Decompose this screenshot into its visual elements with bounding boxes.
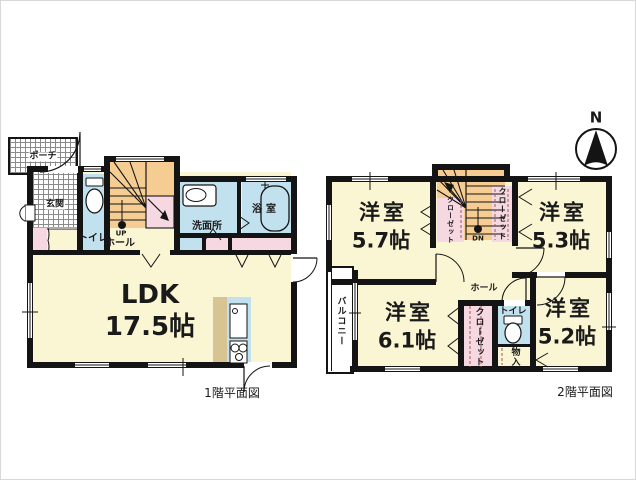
stairs1-area [110,162,174,228]
window [75,362,109,368]
window [352,176,388,182]
wall [170,250,180,255]
floor-plan-image: ポーチ 玄関 トイレ UP ホール 洗面所 浴室 LDK 17.5帖 1階平面図… [0,0,636,480]
door-gap [244,362,272,368]
bedroom-se-size: 5.2帖 [538,327,596,348]
window [148,362,186,368]
washroom-label: 洗面所 [192,222,222,232]
bedroom-se-label: 洋室 [545,299,593,320]
door-gap [504,300,525,306]
wall [512,176,518,246]
hall1-label: ホール [105,239,135,249]
wall [332,279,436,285]
floor1-caption: 1階平面図 [204,387,260,399]
window [326,205,332,240]
ldk-label: LDK [121,282,179,308]
wall [174,156,180,254]
closet-nw-label: クローゼット [447,196,454,244]
door-gap [291,254,297,282]
wall [180,250,297,255]
balcony-label: バルコニー [336,296,345,346]
wall [492,300,498,372]
stairs-down-label: DN [472,236,484,243]
window [385,366,420,372]
ldk-size-label: 17.5帖 [105,314,195,340]
wall [458,300,464,372]
window [352,283,358,340]
wall [504,164,510,178]
door-gap [48,166,78,173]
window [84,166,101,172]
floor2-caption: 2階平面図 [557,386,613,398]
window [543,366,578,372]
compass-north-label: N [590,111,603,126]
toilet2-label: トイレ [499,308,526,317]
bath-label: 浴室 [252,205,280,215]
hall2-label: ホール [470,285,497,294]
window [606,293,612,330]
entrance-label: 玄関 [45,201,65,210]
wall [432,164,510,170]
bedroom-nw-size: 5.7帖 [352,231,410,252]
bedroom-sw-size: 6.1帖 [378,331,436,352]
window [116,156,164,162]
wall [27,172,33,368]
wall [27,250,140,255]
wall [202,238,206,252]
compass-icon [576,129,616,169]
closet-ne-label: クローゼット [498,187,506,241]
door-gap [27,205,33,221]
door-gap [537,272,565,278]
kitchen-counter [227,297,251,367]
porch-label: ポーチ [28,153,57,162]
window [528,176,580,182]
window [27,283,33,338]
closet-s-label: クローゼット [474,307,483,367]
storage-label: 物入 [510,347,519,367]
bedroom-ne-label: 洋室 [539,203,587,224]
bedroom-nw-label: 洋室 [359,203,407,224]
toilet1-label: トイレ [78,234,108,244]
wall [180,233,297,238]
wall [430,176,436,248]
wall [228,238,232,252]
bedroom-sw-label: 洋室 [385,303,433,324]
bedroom-ne-size: 5.3帖 [532,231,590,252]
window [606,232,612,258]
stairs-up-label: UP [116,231,127,238]
wall [237,182,241,233]
wall [530,272,536,372]
kitchen-counter-edge [213,297,227,367]
window [246,176,286,182]
